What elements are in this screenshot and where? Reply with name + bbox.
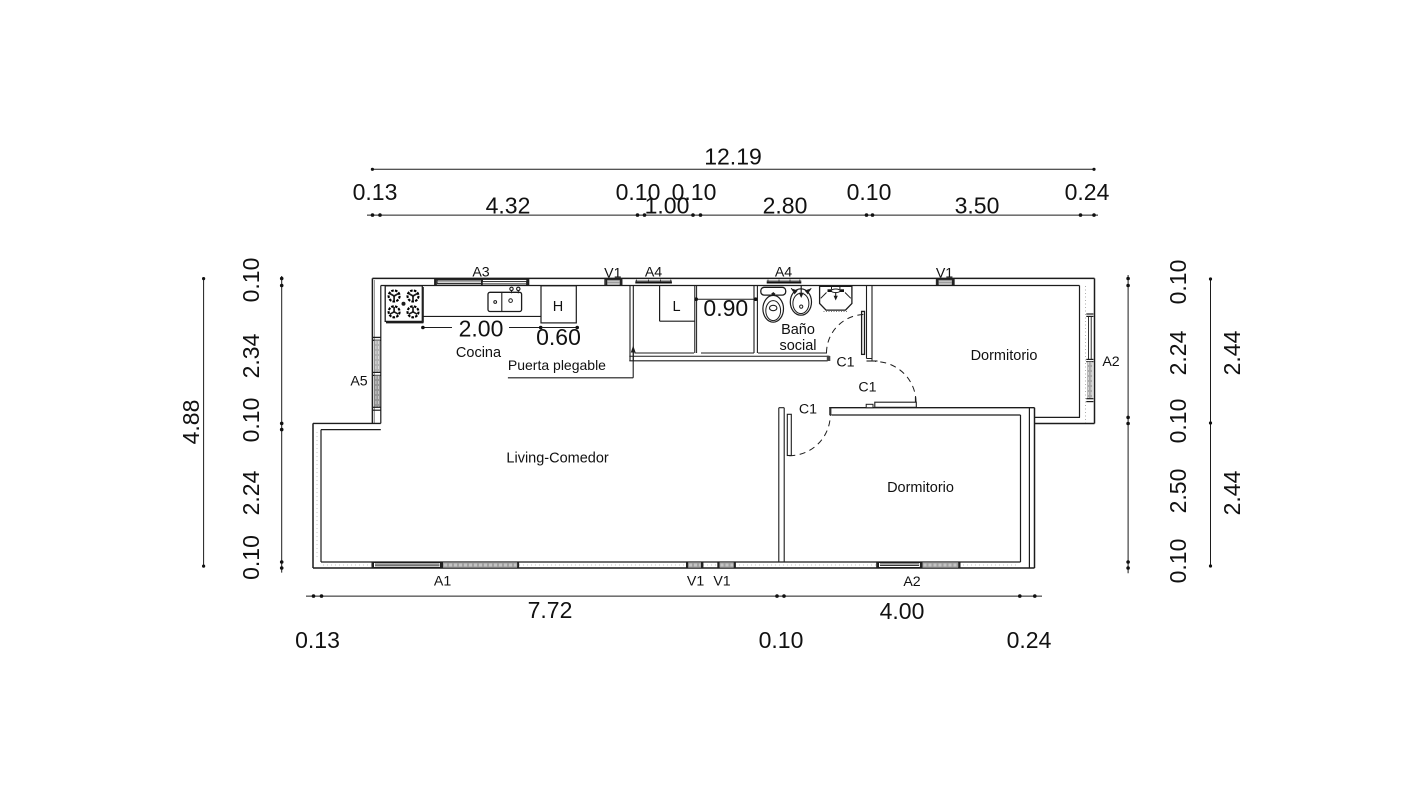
svg-text:0.10: 0.10 [759, 627, 804, 653]
svg-text:A2: A2 [1102, 354, 1119, 370]
svg-text:2.24: 2.24 [1165, 330, 1191, 375]
svg-text:V1: V1 [936, 266, 953, 282]
svg-text:C1: C1 [836, 355, 854, 371]
svg-text:L: L [672, 299, 680, 315]
svg-text:Dormitorio: Dormitorio [887, 480, 954, 496]
svg-text:0.10: 0.10 [238, 535, 264, 580]
svg-text:A3: A3 [472, 265, 489, 281]
svg-text:2.44: 2.44 [1219, 470, 1245, 515]
svg-text:V1: V1 [713, 574, 730, 590]
svg-text:0.90: 0.90 [703, 295, 748, 321]
svg-text:0.10: 0.10 [1165, 260, 1191, 305]
svg-text:3.50: 3.50 [955, 193, 1000, 219]
svg-text:4.88: 4.88 [178, 400, 204, 445]
svg-text:2.80: 2.80 [763, 193, 808, 219]
svg-text:2.34: 2.34 [238, 333, 264, 378]
svg-text:Puerta plegable: Puerta plegable [508, 357, 606, 373]
svg-text:C1: C1 [799, 402, 817, 418]
svg-text:0.13: 0.13 [295, 627, 340, 653]
svg-text:A5: A5 [350, 374, 367, 390]
svg-text:V1: V1 [687, 574, 704, 590]
svg-text:2.44: 2.44 [1219, 330, 1245, 375]
svg-text:0.10: 0.10 [238, 258, 264, 303]
svg-text:4.32: 4.32 [486, 193, 531, 219]
svg-text:Cocina: Cocina [456, 345, 502, 361]
svg-text:0.13: 0.13 [353, 179, 398, 205]
svg-text:1.00: 1.00 [645, 193, 690, 219]
svg-text:2.00: 2.00 [459, 316, 504, 342]
svg-text:2.50: 2.50 [1165, 469, 1191, 514]
svg-text:Dormitorio: Dormitorio [971, 348, 1038, 364]
svg-text:social: social [779, 338, 816, 354]
svg-text:0.60: 0.60 [536, 324, 581, 350]
svg-text:Living-Comedor: Living-Comedor [506, 451, 609, 467]
svg-text:4.00: 4.00 [880, 598, 925, 624]
svg-text:0.10: 0.10 [238, 398, 264, 443]
svg-text:C1: C1 [858, 380, 876, 396]
svg-text:7.72: 7.72 [528, 597, 573, 623]
svg-text:V1: V1 [604, 266, 621, 282]
svg-text:0.10: 0.10 [847, 179, 892, 205]
svg-text:H: H [553, 299, 563, 315]
svg-text:12.19: 12.19 [704, 144, 762, 170]
svg-text:0.24: 0.24 [1065, 179, 1110, 205]
svg-text:A1: A1 [434, 574, 451, 590]
svg-text:0.10: 0.10 [1165, 539, 1191, 584]
svg-text:Baño: Baño [781, 322, 815, 338]
svg-text:A4: A4 [775, 265, 792, 281]
svg-text:A2: A2 [903, 574, 920, 590]
svg-text:0.24: 0.24 [1007, 627, 1052, 653]
svg-text:A4: A4 [645, 265, 662, 281]
svg-text:2.24: 2.24 [238, 470, 264, 515]
svg-text:0.10: 0.10 [1165, 399, 1191, 444]
